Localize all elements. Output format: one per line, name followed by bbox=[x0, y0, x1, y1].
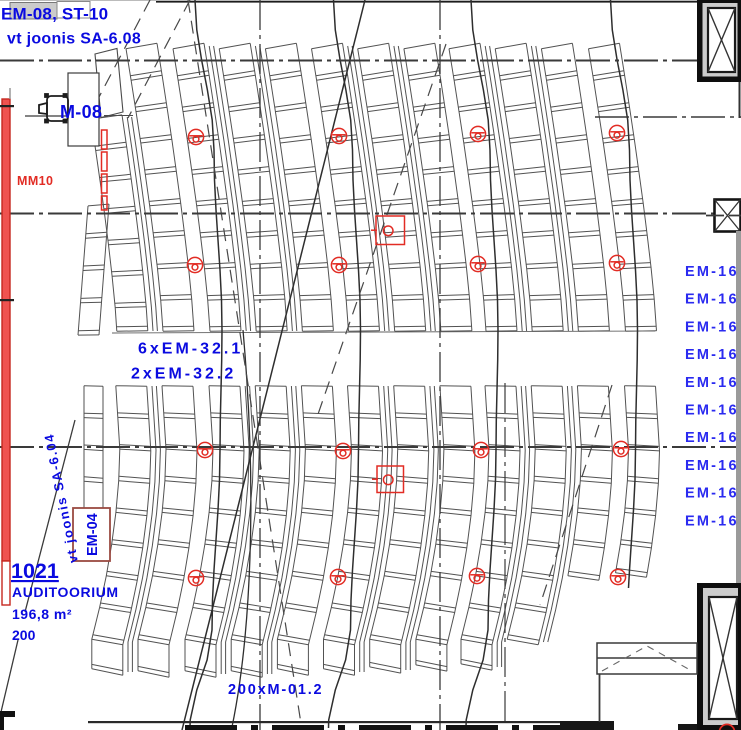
svg-text:2xEM-32.2: 2xEM-32.2 bbox=[131, 366, 236, 383]
svg-text:vt joonis SA-6.08: vt joonis SA-6.08 bbox=[7, 31, 141, 48]
svg-text:196,8 m²: 196,8 m² bbox=[12, 606, 72, 622]
svg-text:EM-16: EM-16 bbox=[685, 319, 739, 335]
svg-text:EM-16: EM-16 bbox=[685, 486, 739, 502]
svg-text:EM-16: EM-16 bbox=[685, 458, 739, 474]
svg-text:6xEM-32.1: 6xEM-32.1 bbox=[138, 341, 243, 358]
svg-text:200: 200 bbox=[12, 627, 36, 643]
svg-text:EM-16: EM-16 bbox=[685, 292, 739, 308]
svg-text:EM-04: EM-04 bbox=[85, 513, 101, 556]
svg-text:EM-08, ST-10: EM-08, ST-10 bbox=[1, 5, 108, 24]
svg-text:EM-16: EM-16 bbox=[685, 347, 739, 363]
svg-text:MM10: MM10 bbox=[17, 174, 53, 188]
svg-text:AUDITOORIUM: AUDITOORIUM bbox=[12, 584, 119, 600]
svg-text:EM-16: EM-16 bbox=[685, 375, 739, 391]
svg-text:EM-16: EM-16 bbox=[685, 430, 739, 446]
svg-text:1021: 1021 bbox=[11, 559, 59, 583]
svg-text:EM-16: EM-16 bbox=[685, 513, 739, 529]
svg-text:EM-16: EM-16 bbox=[685, 403, 739, 419]
svg-text:200xM-01.2: 200xM-01.2 bbox=[228, 682, 323, 698]
svg-text:M-08: M-08 bbox=[60, 102, 102, 122]
svg-text:EM-16: EM-16 bbox=[685, 264, 739, 280]
